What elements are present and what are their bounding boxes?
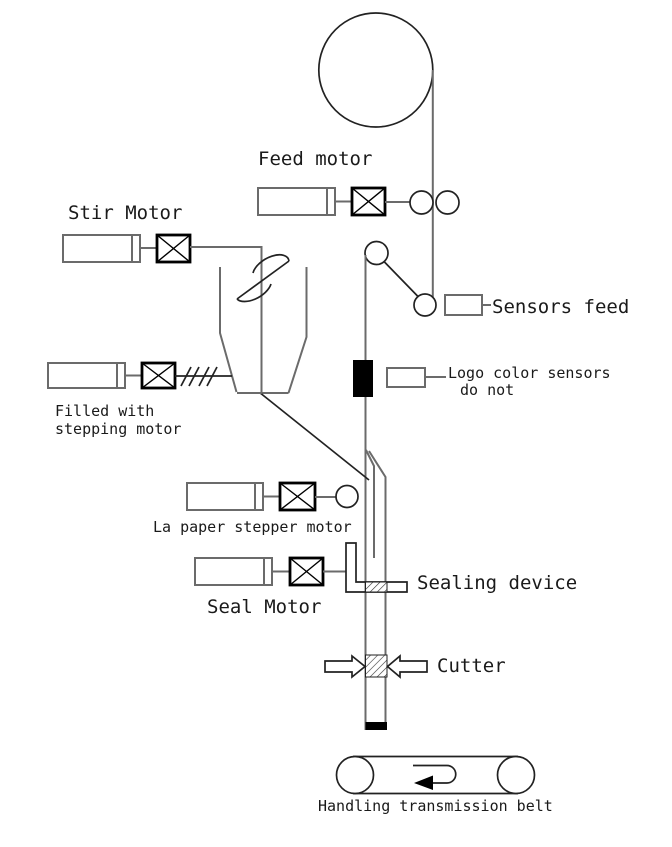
bag-end-seal-mark <box>366 722 388 730</box>
feed-sensor <box>445 295 491 315</box>
feed-sensor-label: Sensors feed <box>492 296 629 318</box>
stirrer-propeller-icon <box>237 255 289 302</box>
film-roll-circle <box>319 13 433 127</box>
paper-stepper-motor-assembly <box>187 483 358 510</box>
filling-motor-label-line2: stepping motor <box>55 420 181 438</box>
feed-motor-assembly <box>258 188 459 215</box>
stir-coupling-icon <box>157 235 190 262</box>
film-roll <box>319 13 433 127</box>
stir-motor-body <box>63 235 140 262</box>
belt-roller-left-icon <box>337 757 374 794</box>
hopper-outline <box>220 267 307 393</box>
sealing-bar-hatch <box>366 582 388 592</box>
conveyor-belt <box>337 757 535 794</box>
pinch-roller-right-icon <box>436 191 459 214</box>
feed-coupling-icon <box>352 188 385 215</box>
logo-sensor-label-line1: Logo color sensors <box>448 364 611 382</box>
logo-sensor-box <box>387 368 425 387</box>
cutter-blade-hatch <box>366 655 388 677</box>
seal-motor-assembly <box>195 558 346 585</box>
belt-direction-arrow-icon <box>413 766 456 791</box>
feed-motor-label: Feed motor <box>258 148 372 170</box>
logo-color-sensor <box>387 368 446 387</box>
pinch-roller-left-icon <box>410 191 433 214</box>
paper-coupling-icon <box>280 483 315 510</box>
cutter <box>325 655 427 677</box>
filling-motor-label-line1: Filled with <box>55 402 154 420</box>
product-chute-line <box>262 394 370 480</box>
upper-guide-roller-icon <box>365 242 388 265</box>
film-path <box>365 70 436 730</box>
cutter-arrow-right-icon <box>388 656 428 677</box>
cutter-label: Cutter <box>437 655 506 677</box>
sealing-device-label: Sealing device <box>417 572 577 594</box>
feed-motor-body <box>258 188 335 215</box>
registration-mark <box>353 360 373 397</box>
filling-motor-assembly <box>48 363 232 388</box>
diagram-canvas: Feed motor Stir Motor <box>0 0 672 847</box>
film-line-diagonal <box>384 262 418 297</box>
seal-motor-label: Seal Motor <box>207 596 321 618</box>
paper-motor-label: La paper stepper motor <box>153 518 352 536</box>
seal-coupling-icon <box>290 558 323 585</box>
belt-label: Handling transmission belt <box>318 797 553 815</box>
hopper <box>220 267 307 393</box>
sealing-device <box>346 543 407 592</box>
fill-tube-inner-line <box>366 450 374 558</box>
stirrer-shaft-line <box>190 247 262 395</box>
seal-motor-body <box>195 558 272 585</box>
paper-drive-roller-icon <box>336 486 358 508</box>
feed-sensor-box <box>445 295 482 315</box>
paper-motor-body <box>187 483 263 510</box>
machine-schematic: Feed motor Stir Motor <box>0 0 672 847</box>
filling-coupling-icon <box>142 363 175 388</box>
cutter-arrow-left-icon <box>325 656 365 677</box>
logo-sensor-label-line2: do not <box>460 381 514 399</box>
belt-roller-right-icon <box>498 757 535 794</box>
stir-motor-label: Stir Motor <box>68 202 182 224</box>
lower-guide-roller-icon <box>414 294 436 316</box>
filling-motor-body <box>48 363 125 388</box>
